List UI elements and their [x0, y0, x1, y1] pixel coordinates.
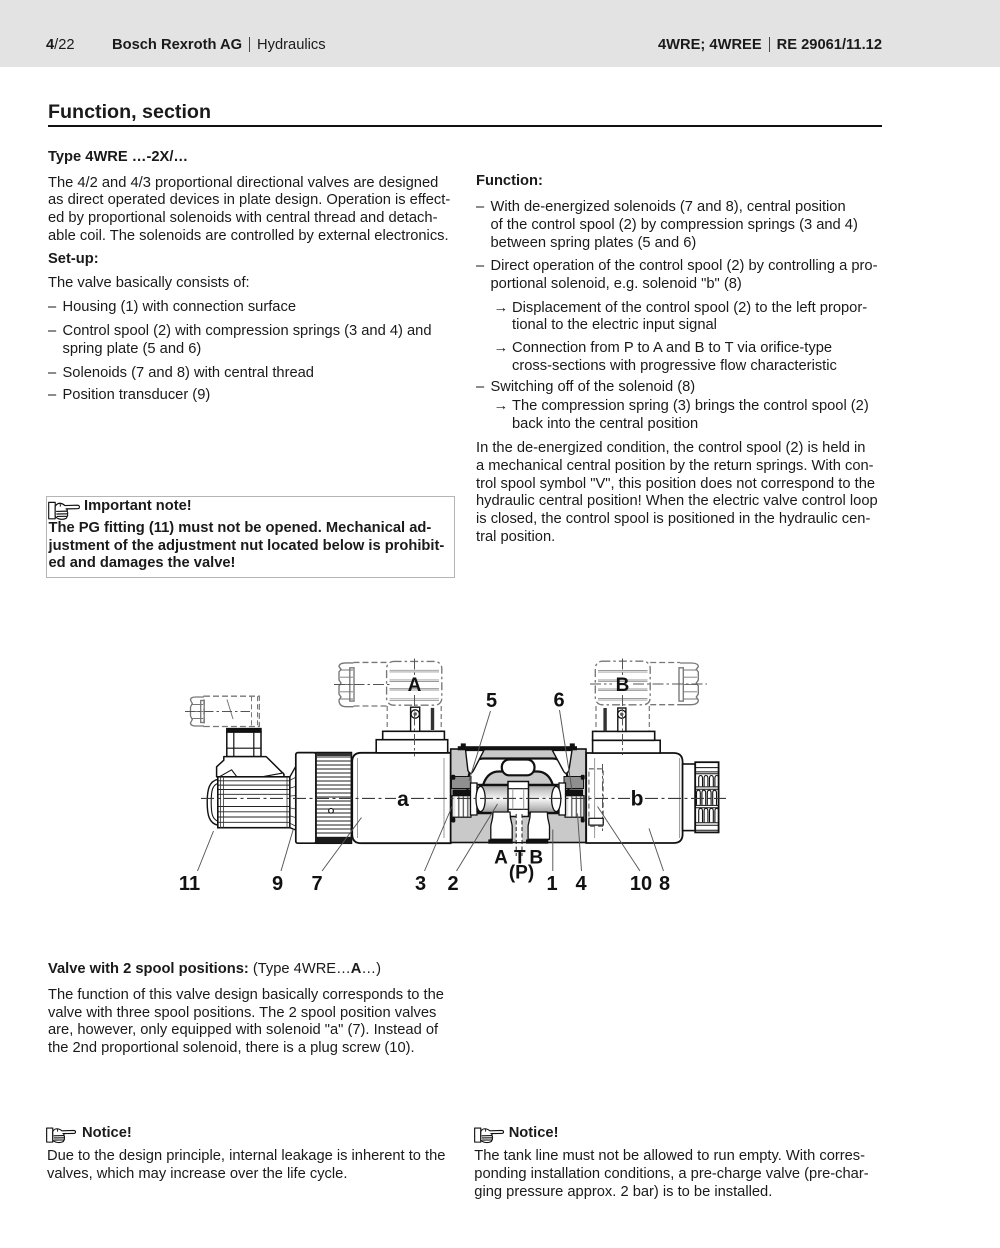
svg-text:6: 6	[553, 690, 564, 712]
svg-text:A: A	[494, 848, 508, 869]
svg-text:2: 2	[447, 873, 458, 895]
svg-text:a: a	[397, 788, 409, 811]
svg-text:5: 5	[486, 690, 497, 712]
svg-text:3: 3	[415, 873, 426, 895]
svg-text:1: 1	[546, 873, 557, 895]
svg-text:7: 7	[311, 873, 322, 895]
svg-text:b: b	[631, 788, 644, 811]
svg-text:10: 10	[630, 873, 652, 895]
svg-text:A: A	[408, 675, 422, 696]
svg-text:9: 9	[272, 873, 283, 895]
svg-text:B: B	[616, 675, 630, 696]
svg-text:11: 11	[179, 873, 200, 895]
svg-text:8: 8	[659, 873, 670, 895]
svg-text:4: 4	[575, 873, 587, 895]
svg-text:(P): (P)	[509, 863, 534, 884]
